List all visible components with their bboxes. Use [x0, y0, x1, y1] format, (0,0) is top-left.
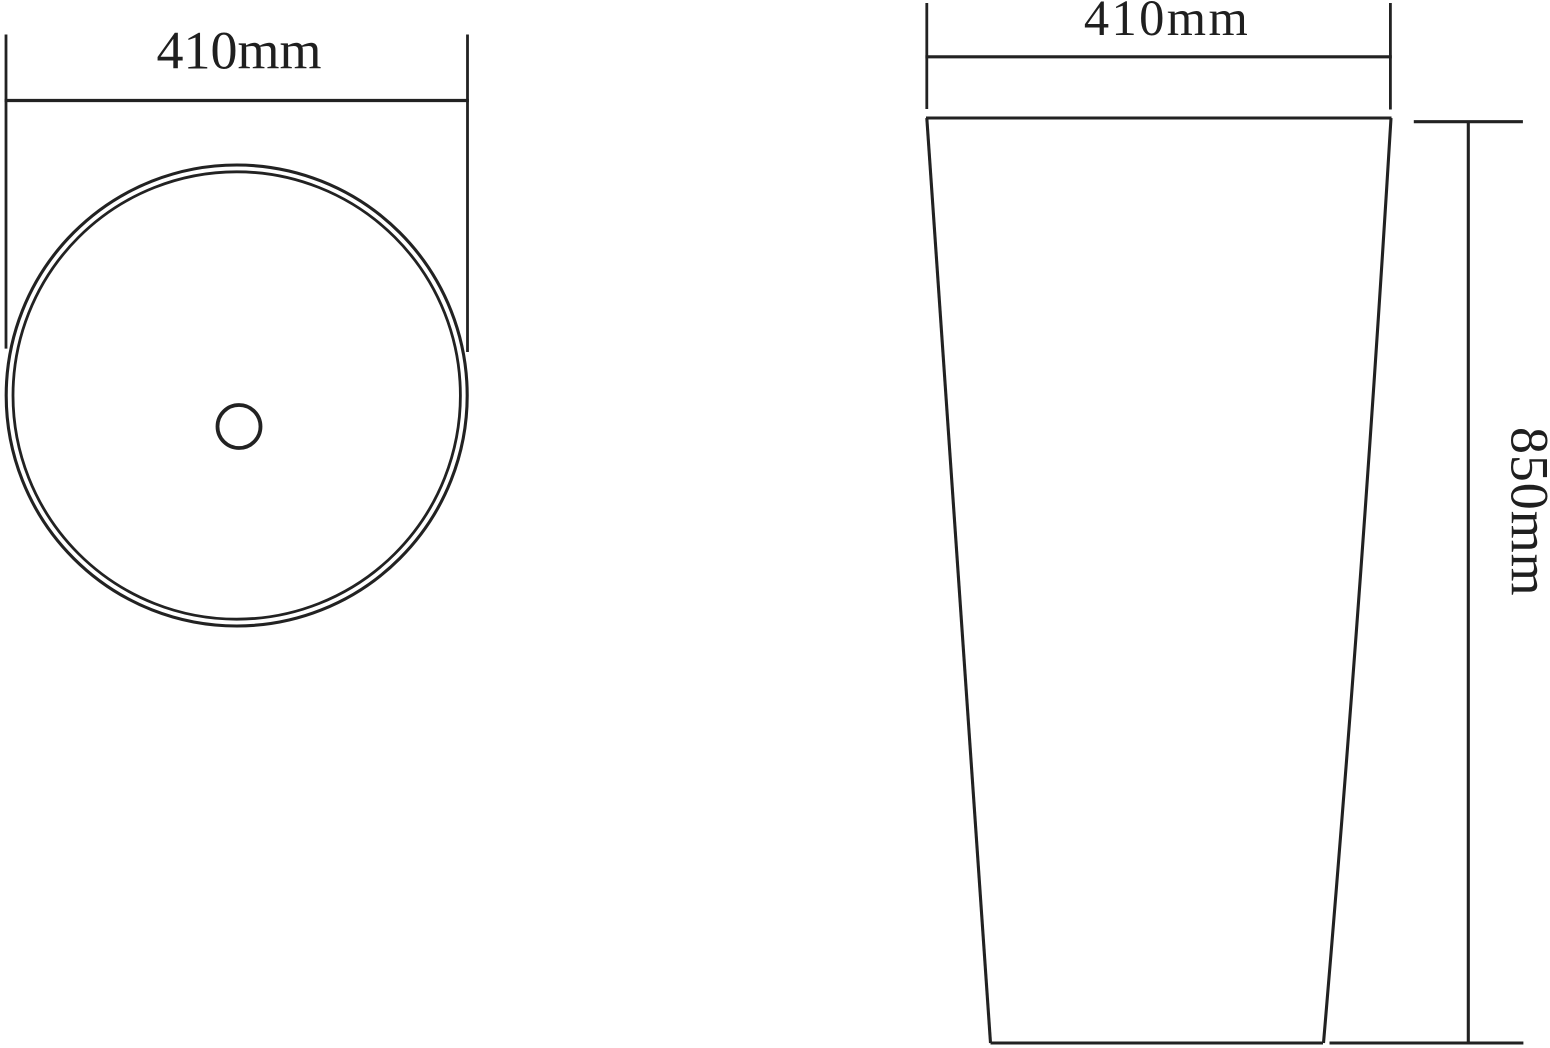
svg-text:410mm: 410mm [156, 21, 321, 81]
svg-text:410mm: 410mm [1084, 0, 1250, 46]
svg-text:850mm: 850mm [1500, 427, 1550, 597]
